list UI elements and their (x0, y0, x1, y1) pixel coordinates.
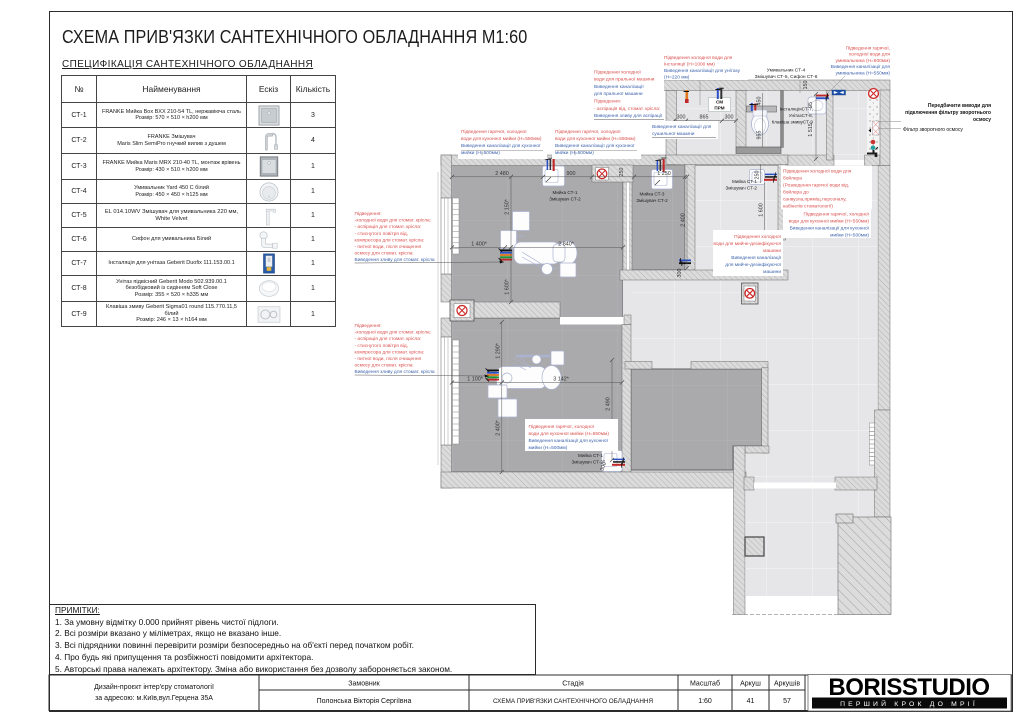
svg-text:57: 57 (783, 698, 791, 705)
svg-text:Аркуш: Аркуш (740, 681, 761, 688)
svg-text:за адресою: м.Київ,вул.Герцена: за адресою: м.Київ,вул.Герцена 35А (95, 695, 213, 702)
svg-text:Полонська Вікторія Сергіївна: Полонська Вікторія Сергіївна (317, 697, 412, 705)
svg-text:ПЕРШИЙ КРОК ДО МРІЇ: ПЕРШИЙ КРОК ДО МРІЇ (840, 699, 978, 708)
svg-text:Аркушів: Аркушів (774, 680, 800, 688)
svg-text:Масштаб: Масштаб (690, 680, 720, 688)
svg-text:41: 41 (747, 698, 755, 705)
svg-text:BORISSTUDIO: BORISSTUDIO (828, 674, 989, 701)
svg-text:1:60: 1:60 (698, 698, 712, 705)
svg-text:Дизайн-проєкт інтер'єру стомат: Дизайн-проєкт інтер'єру стоматології (94, 683, 214, 691)
svg-text:Стадія: Стадія (562, 680, 584, 688)
svg-text:Замовник: Замовник (348, 681, 380, 688)
svg-text:СХЕМА ПРИВ'ЯЗКИ САНТЕХНІЧНОГО: СХЕМА ПРИВ'ЯЗКИ САНТЕХНІЧНОГО ОБЛАДНАННЯ (493, 698, 653, 705)
